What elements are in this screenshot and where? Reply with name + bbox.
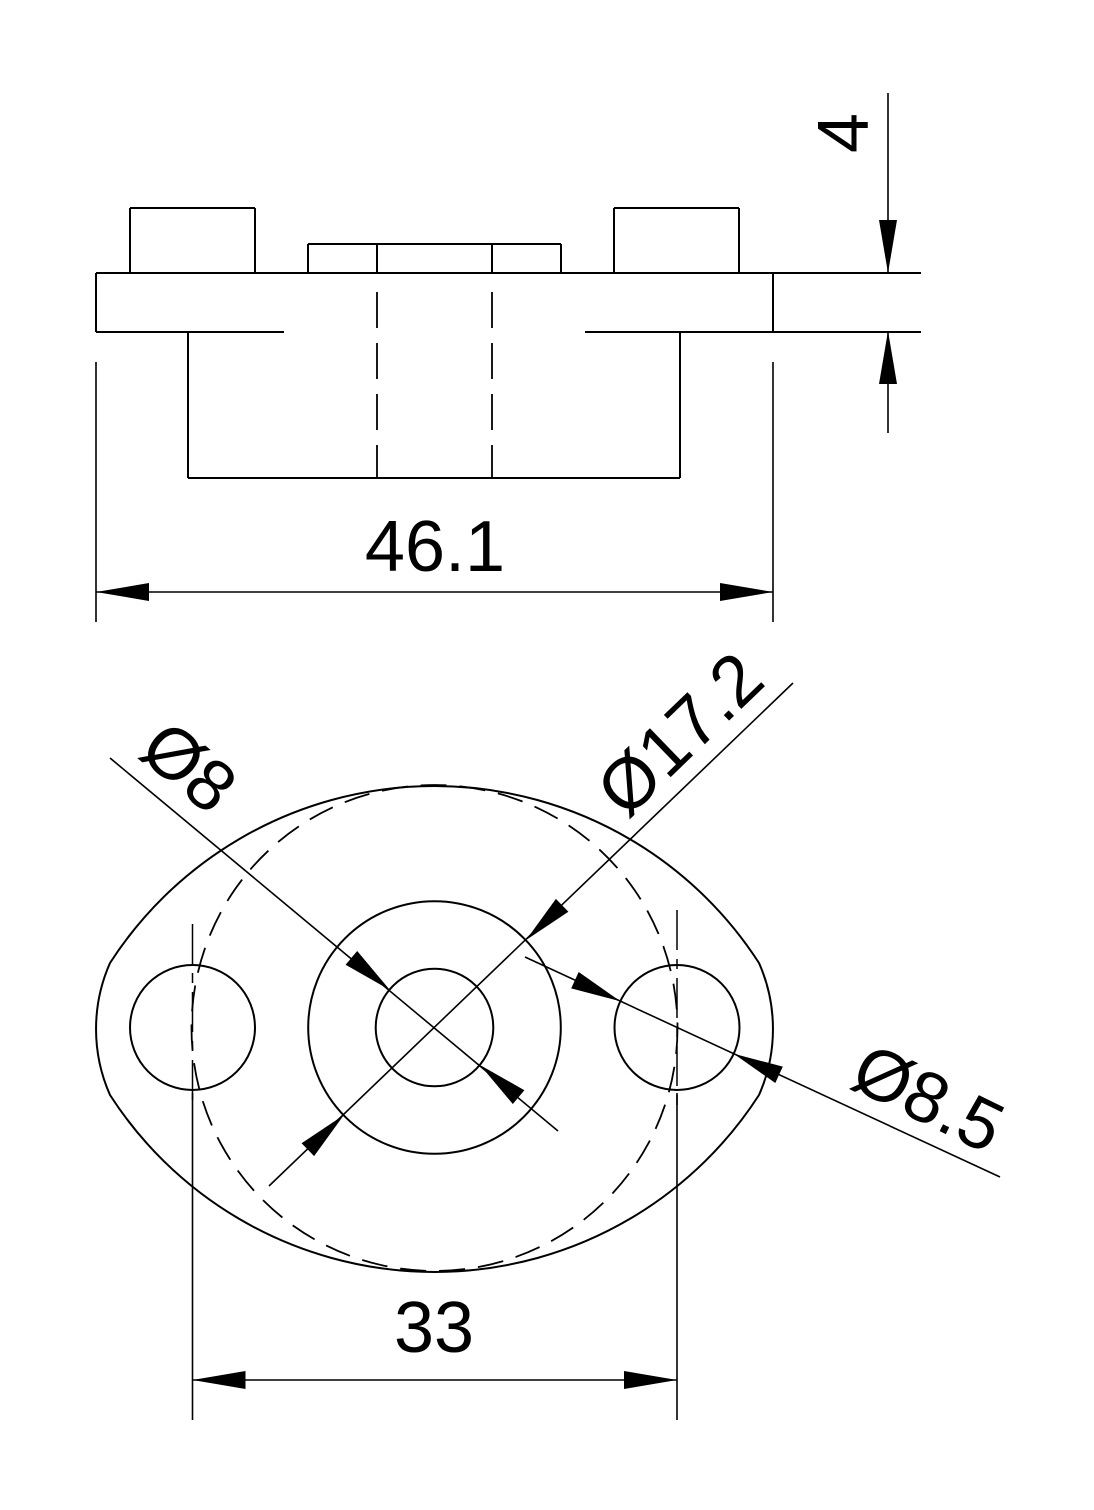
dim-boss: Ø17.2 [269, 638, 793, 1186]
dim-center-hole: Ø8 [110, 706, 558, 1131]
front-view: 46.1 4 [96, 93, 921, 622]
dim-label-center-hole: Ø8 [126, 706, 251, 829]
arrowhead-nw [346, 951, 390, 990]
front-outline [96, 208, 921, 478]
arrowhead-left [193, 1371, 246, 1389]
arrowhead-left [571, 972, 620, 1001]
bottom-view: Ø8 Ø17.2 Ø8.5 33 [96, 638, 1016, 1420]
drawing-sheet: 46.1 4 Ø8 [0, 0, 1094, 1510]
arrowhead-down [879, 220, 897, 273]
dim-label-overall-width: 46.1 [365, 507, 505, 587]
dim-hole-spacing: 33 [193, 1093, 678, 1420]
arrowhead-up [879, 331, 897, 384]
dim-side-hole: Ø8.5 [525, 957, 1016, 1177]
dim-label-hole-spacing: 33 [394, 1288, 474, 1368]
dim-label-side-hole: Ø8.5 [840, 1029, 1015, 1169]
arrowhead-right [720, 583, 773, 601]
dim-label-boss: Ø17.2 [582, 638, 779, 832]
arrowhead-left [96, 583, 149, 601]
arrowhead-sw [302, 1115, 344, 1156]
drawing-canvas: 46.1 4 Ø8 [0, 0, 1094, 1510]
front-hidden-lines [377, 292, 492, 478]
arrowhead-right [624, 1371, 677, 1389]
dim-overall-width: 46.1 [96, 362, 773, 622]
dim-thickness: 4 [804, 93, 897, 433]
arrowhead-right [734, 1054, 783, 1083]
dim-label-thickness: 4 [804, 113, 884, 153]
